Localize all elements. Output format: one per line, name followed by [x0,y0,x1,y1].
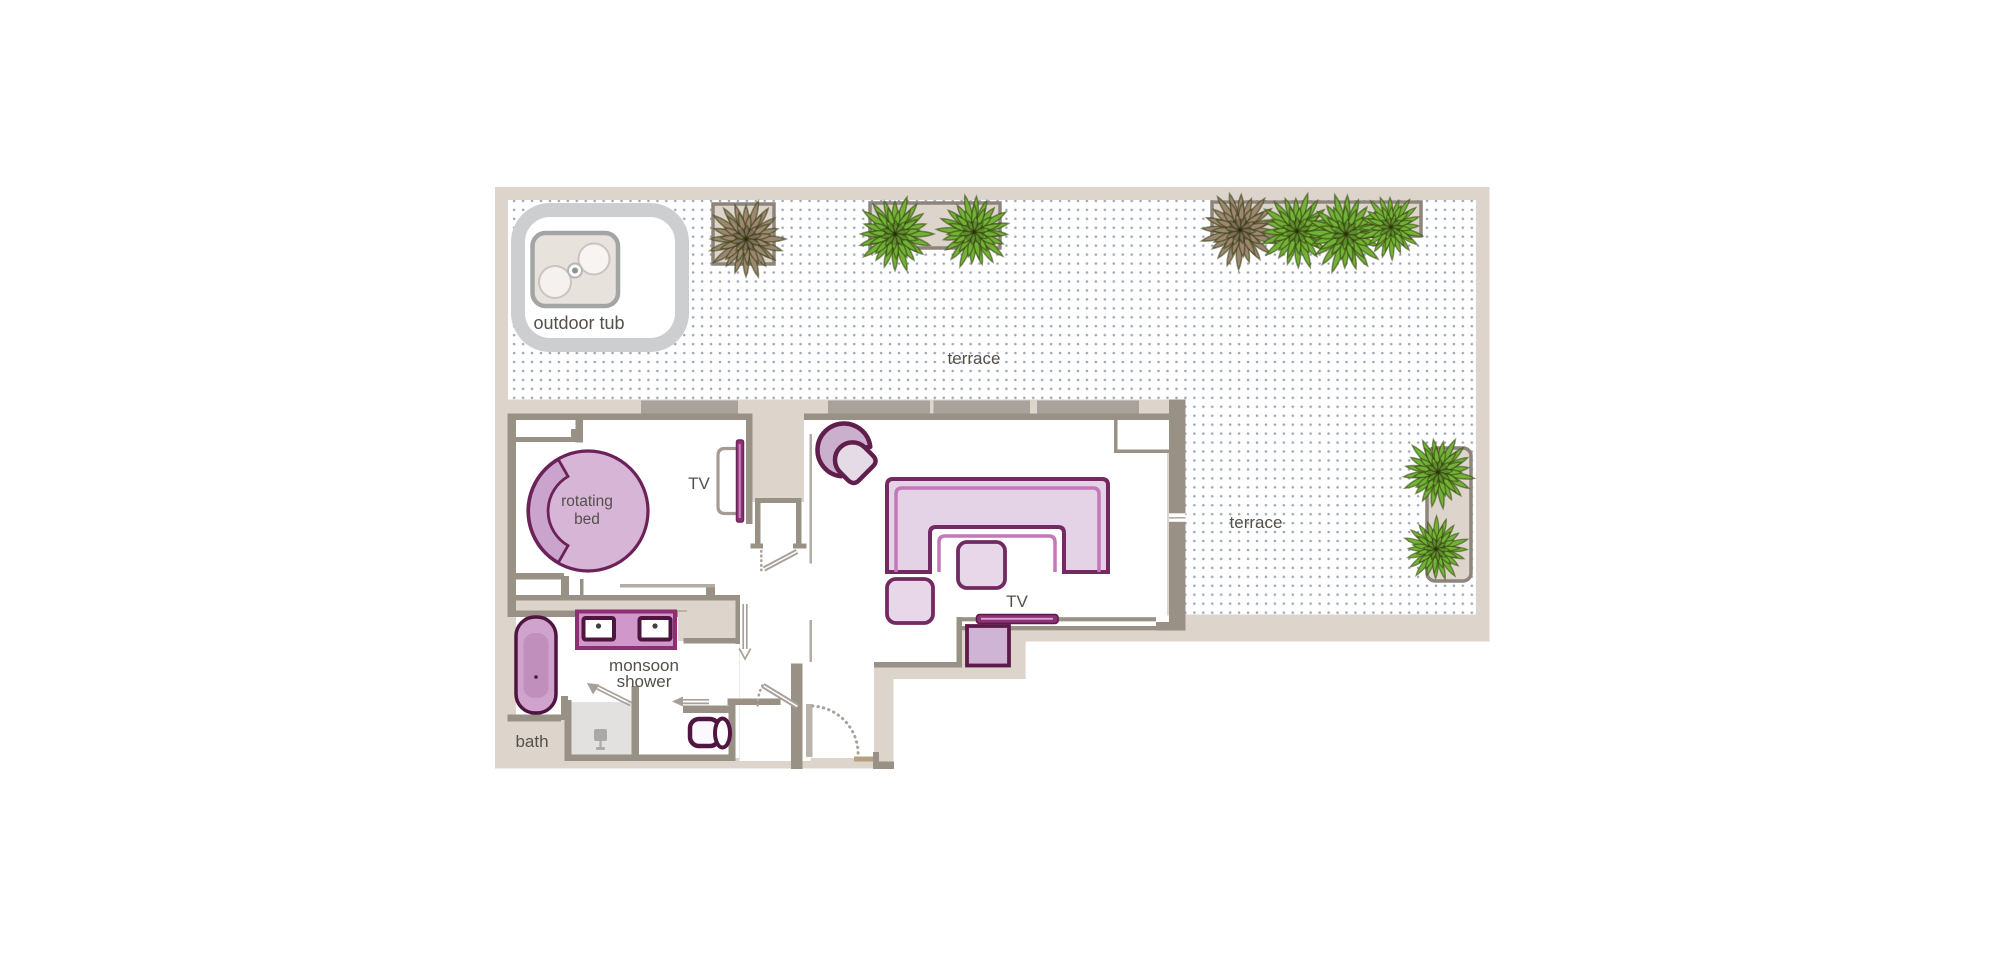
svg-text:bath: bath [515,732,548,751]
svg-text:TV: TV [1006,592,1028,611]
svg-text:terrace: terrace [1230,513,1283,532]
svg-text:TV: TV [688,474,710,493]
svg-text:rotating: rotating [561,493,613,510]
svg-text:shower: shower [617,672,672,691]
svg-text:bed: bed [574,511,600,528]
svg-text:outdoor tub: outdoor tub [533,313,624,333]
svg-text:terrace: terrace [948,349,1001,368]
